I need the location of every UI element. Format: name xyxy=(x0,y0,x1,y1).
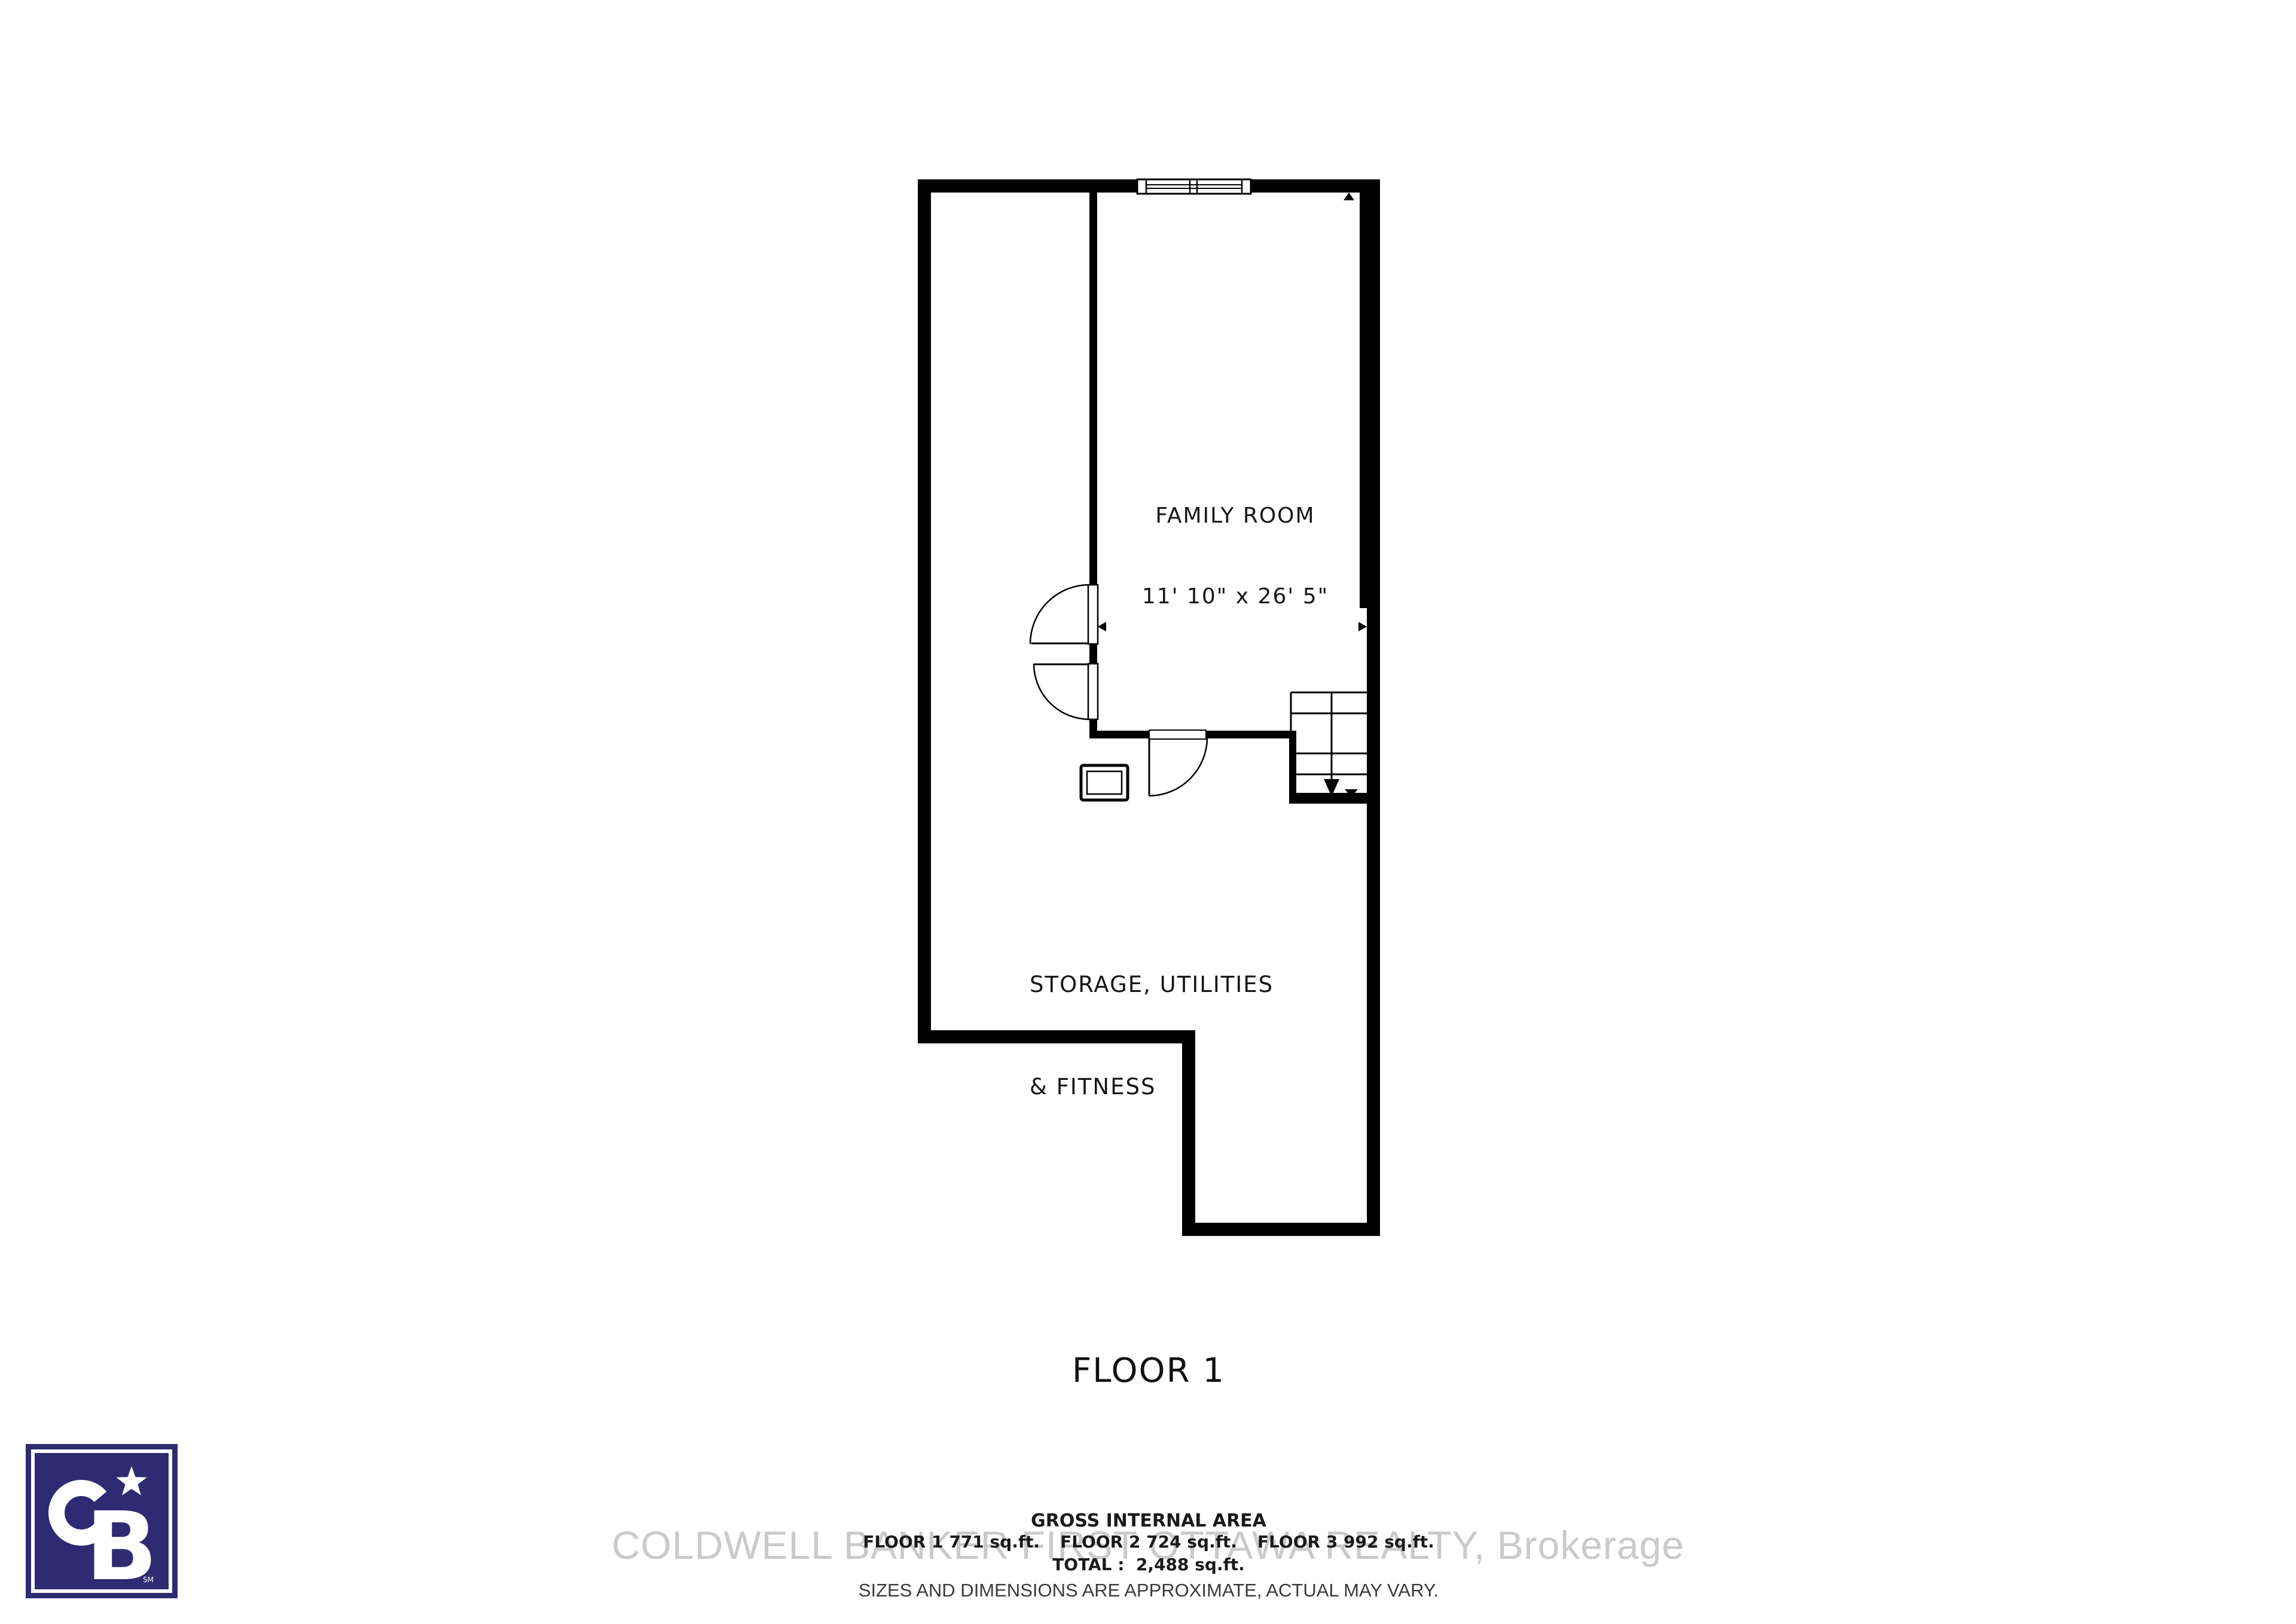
window-symbol xyxy=(1137,179,1251,194)
utility-box-symbol xyxy=(1081,765,1128,800)
interior-wall-horizontal-right xyxy=(1206,731,1296,738)
interior-wall-vertical-stub xyxy=(1089,644,1097,664)
family-room-name: FAMILY ROOM xyxy=(1142,502,1329,529)
floor2-area: FLOOR 2 724 sq.ft. xyxy=(1060,1532,1237,1552)
storage-room-label: STORAGE, UTILITIES & FITNESS xyxy=(1030,899,1274,1138)
floor1-area: FLOOR 1 771 sq.ft. xyxy=(863,1532,1040,1552)
stairwell-wall-vertical xyxy=(1289,734,1296,801)
page: { "page": { "background_color": "#ffffff… xyxy=(0,0,2296,1624)
area-summary-total: TOTAL : 2,488 sq.ft. xyxy=(1052,1555,1245,1574)
cb-monogram: B SM xyxy=(26,1444,178,1598)
coldwell-banker-logo: B SM xyxy=(26,1444,178,1598)
storage-room-name-line2: & FITNESS xyxy=(1030,1070,1274,1104)
floor3-area: FLOOR 3 992 sq.ft. xyxy=(1257,1532,1434,1552)
family-room-dimensions: 11' 10" x 26' 5" xyxy=(1142,583,1329,610)
stairwell-wall-bottom xyxy=(1289,793,1367,804)
interior-wall-horizontal-left xyxy=(1089,731,1149,738)
area-summary-disclaimer: SIZES AND DIMENSIONS ARE APPROXIMATE, AC… xyxy=(859,1580,1439,1601)
family-room-label: FAMILY ROOM 11' 10" x 26' 5" xyxy=(1142,448,1329,637)
storage-room-name-line1: STORAGE, UTILITIES xyxy=(1030,967,1274,1002)
area-summary-heading: GROSS INTERNAL AREA xyxy=(1031,1510,1266,1531)
area-summary-floors: FLOOR 1 771 sq.ft. FLOOR 2 724 sq.ft. FL… xyxy=(863,1532,1434,1552)
right-wall-inner-layer xyxy=(1360,193,1367,608)
logo-service-mark: SM xyxy=(143,1576,154,1584)
floor-title: FLOOR 1 xyxy=(1072,1351,1225,1390)
interior-wall-vertical-upper xyxy=(1089,187,1097,585)
star-icon xyxy=(116,1466,146,1495)
